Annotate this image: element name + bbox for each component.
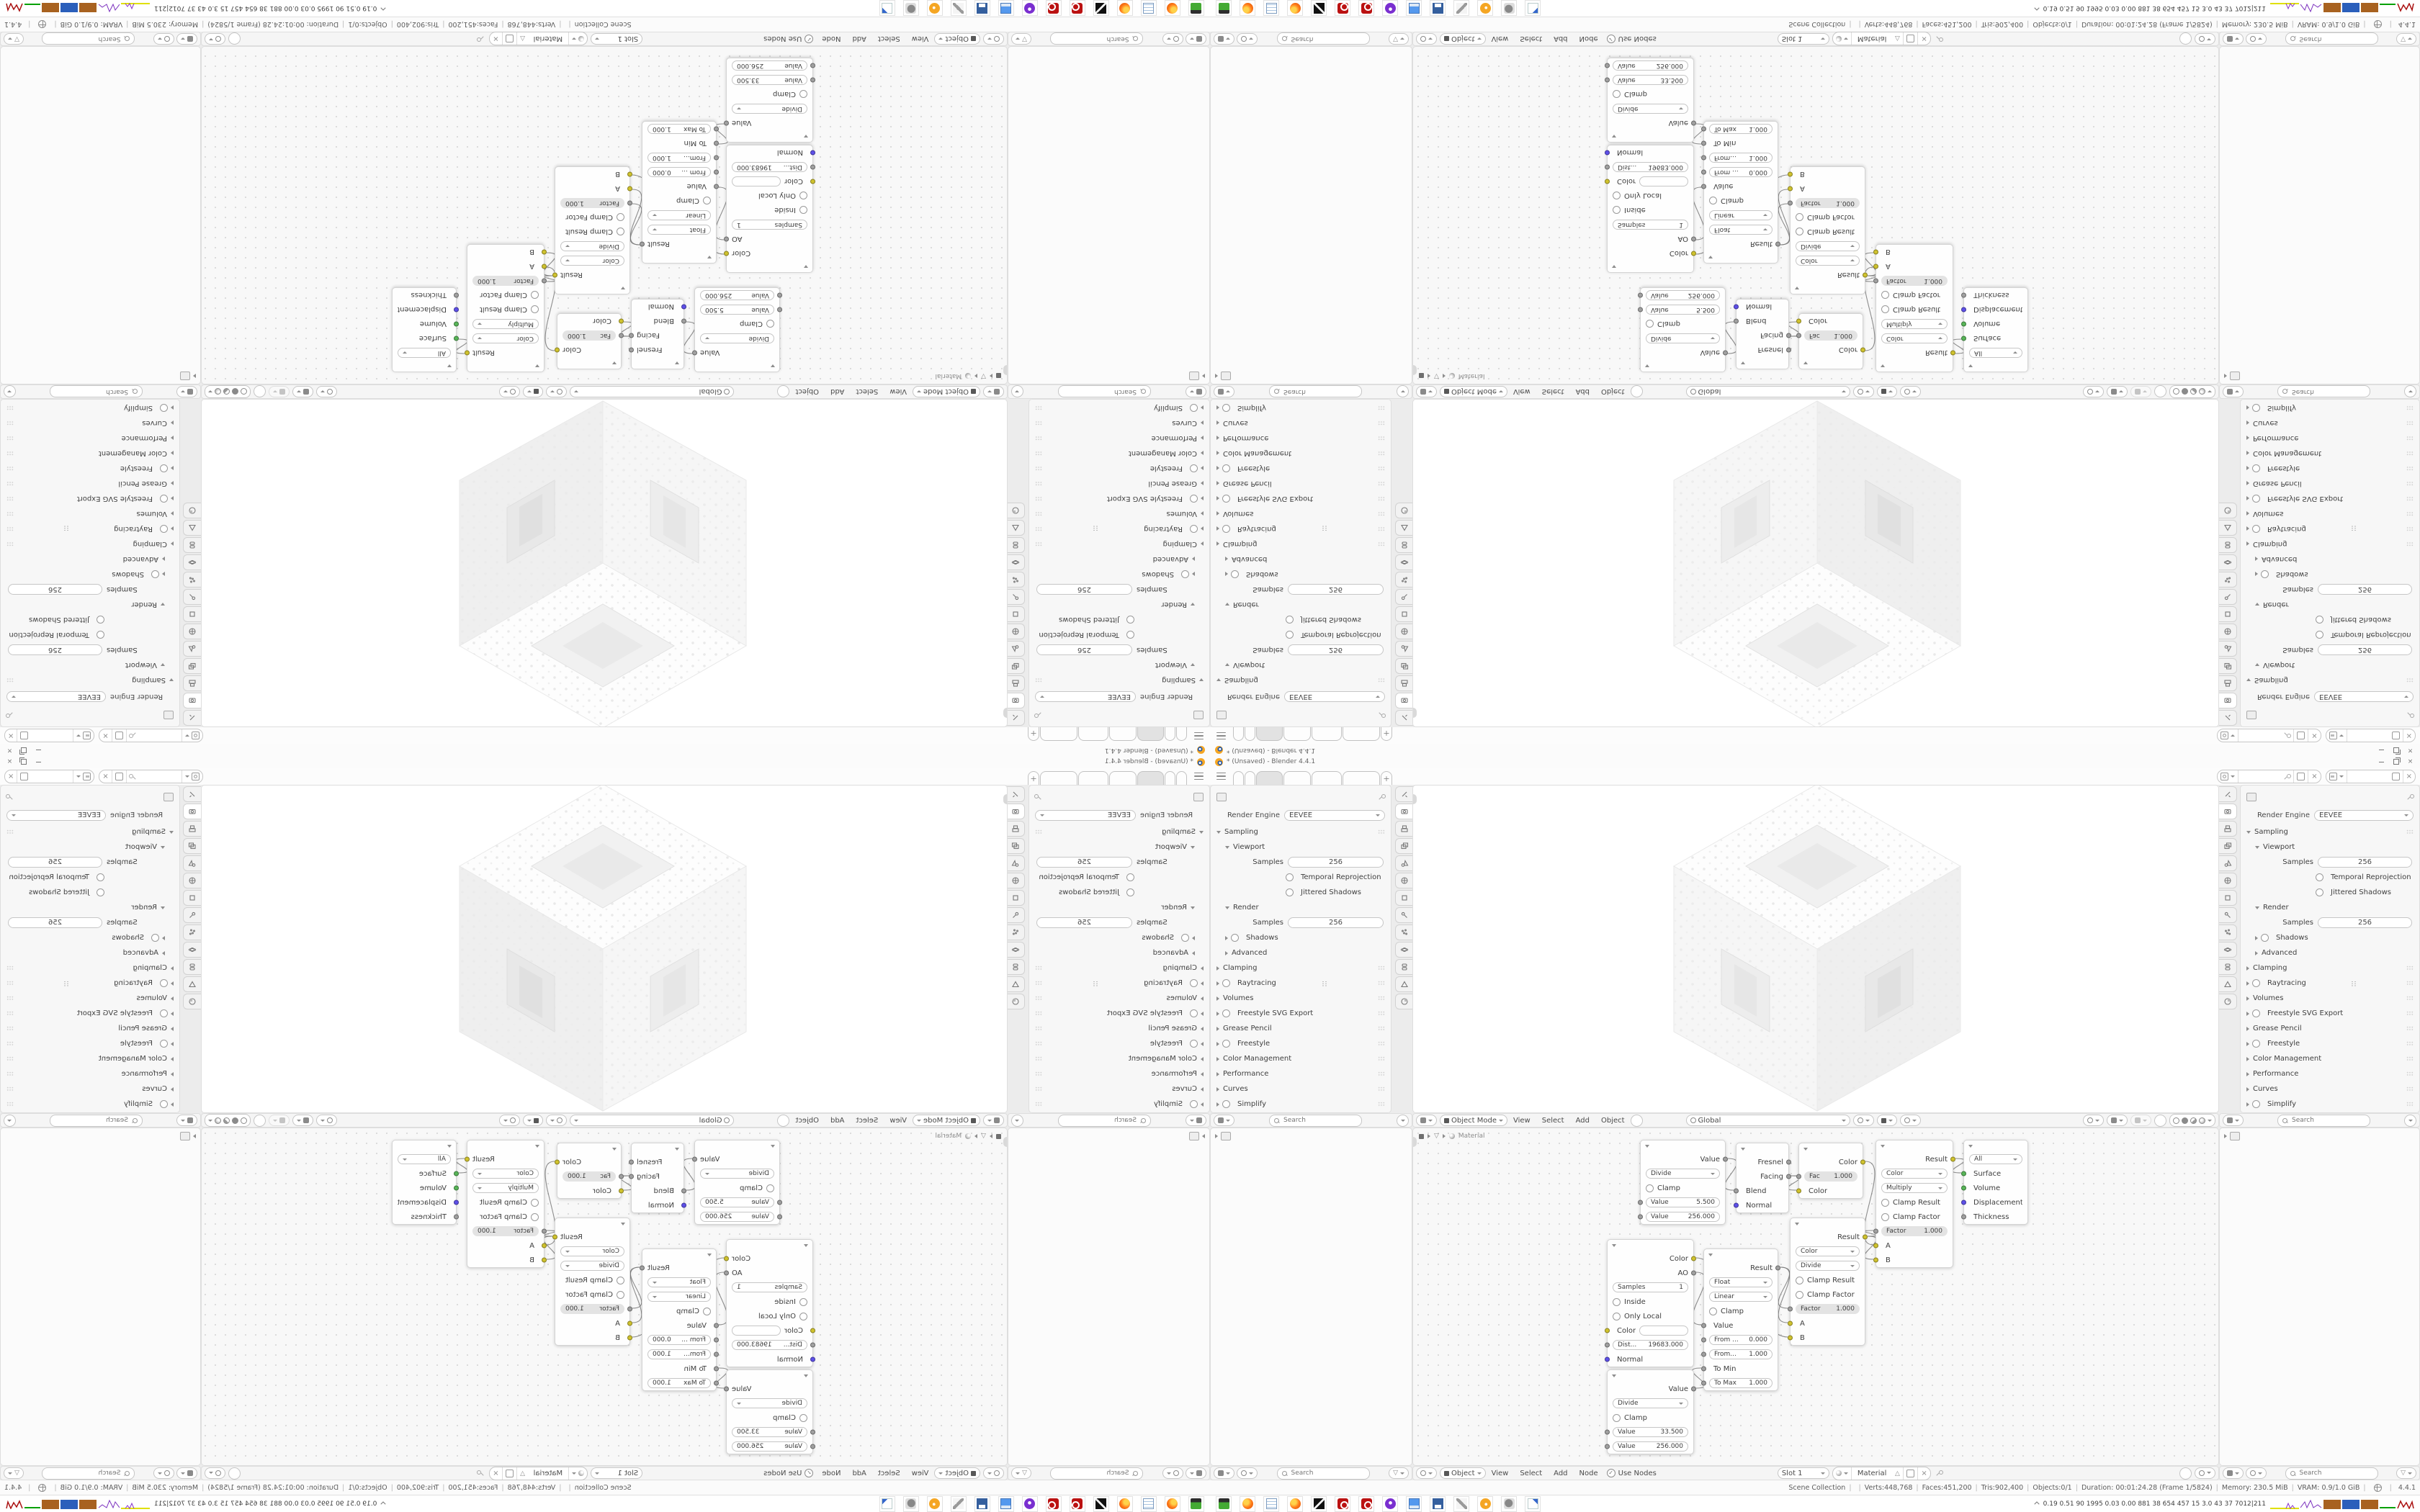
socket-r[interactable]	[1950, 1157, 1955, 1162]
search-input[interactable]	[2298, 1469, 2373, 1477]
properties-tab-output-icon[interactable]	[1395, 821, 1413, 837]
editor-type-button[interactable]	[1186, 1115, 1206, 1126]
socket-l[interactable]	[810, 1444, 815, 1449]
socket-l[interactable]	[1796, 1174, 1801, 1179]
checkbox-circle[interactable]	[1796, 214, 1803, 222]
collapse-chevron-icon[interactable]	[675, 361, 679, 364]
drag-grip-icon[interactable]	[1035, 1056, 1042, 1061]
checkbox-circle[interactable]	[2316, 873, 2323, 881]
drag-grip-icon[interactable]	[6, 678, 14, 683]
node-header[interactable]	[555, 282, 629, 294]
material-shading-icon[interactable]	[2190, 1117, 2197, 1124]
socket-l[interactable]	[627, 201, 632, 206]
options-button[interactable]	[1011, 386, 1023, 398]
dropdown-color[interactable]: Color	[560, 1246, 624, 1256]
section-volumes[interactable]: Volumes	[1211, 991, 1391, 1006]
viewport-editor-type-button[interactable]	[983, 1115, 1004, 1126]
socket-r[interactable]	[1786, 1174, 1791, 1179]
pivot-point-dropdown[interactable]	[546, 386, 567, 397]
socket-r[interactable]	[465, 351, 470, 356]
section-curves[interactable]: Curves	[2241, 1081, 2419, 1097]
drag-grip-icon[interactable]	[1035, 981, 1042, 986]
taskbar-app-redgear-icon[interactable]	[1335, 1, 1350, 17]
socket-r[interactable]	[692, 1157, 697, 1162]
close-button[interactable]: ×	[6, 758, 14, 766]
section-performance[interactable]: Performance	[2241, 1066, 2419, 1081]
section-temporal-reprojection[interactable]: Temporal Reprojection	[2241, 627, 2419, 642]
socket-r[interactable]	[1863, 273, 1868, 278]
section-performance[interactable]: Performance	[1029, 1066, 1209, 1081]
options-button[interactable]	[4, 386, 16, 398]
properties-tab-modifiers-icon[interactable]	[2219, 589, 2237, 605]
section-checkbox[interactable]	[1222, 495, 1230, 503]
properties-search[interactable]	[1269, 386, 1362, 398]
socket-r[interactable]	[629, 1174, 634, 1179]
section-performance[interactable]: Performance	[1, 1066, 179, 1081]
value-field[interactable]: Value256.000	[1613, 60, 1688, 71]
node-header[interactable]	[1876, 360, 1953, 372]
properties-tab-tool-icon[interactable]	[183, 710, 201, 726]
socket-r[interactable]	[1691, 1387, 1696, 1392]
socket-l[interactable]	[1701, 1381, 1706, 1386]
socket-l[interactable]	[619, 319, 624, 324]
properties-tab-view-layer-icon[interactable]	[1395, 838, 1413, 854]
checkbox-circle[interactable]	[766, 320, 774, 328]
drag-grip-icon[interactable]	[2406, 451, 2414, 456]
mode-transfer-button[interactable]	[1631, 386, 1643, 398]
checkbox-circle[interactable]	[1709, 197, 1717, 205]
properties-tab-object-icon[interactable]	[1007, 606, 1025, 622]
socket-l[interactable]	[810, 179, 815, 184]
menu-select[interactable]: Select	[1520, 35, 1542, 43]
socket-l[interactable]	[810, 63, 815, 68]
taskbar-app-wrench-icon[interactable]	[951, 1, 967, 17]
drag-grip-icon[interactable]	[2406, 466, 2414, 471]
section-clamping[interactable]: Clamping	[2241, 960, 2419, 976]
workspace-tab-4[interactable]	[1283, 727, 1311, 741]
properties-tab-object-data-icon[interactable]	[1395, 520, 1413, 536]
socket-l[interactable]	[1961, 322, 1966, 327]
editor-type-button[interactable]	[1416, 1467, 1437, 1479]
checkbox-circle[interactable]	[97, 631, 104, 639]
collapse-chevron-icon[interactable]	[1645, 364, 1649, 367]
dropdown-float[interactable]: Float	[647, 225, 711, 235]
drag-grip-icon[interactable]	[1378, 829, 1385, 834]
section-grease-pencil[interactable]: Grease Pencil	[1, 476, 179, 491]
fake-user-shield-button[interactable]: ▽	[1892, 33, 1904, 45]
section-viewport[interactable]: Viewport	[2241, 657, 2419, 672]
properties-search[interactable]	[1269, 1115, 1362, 1127]
taskbar-app-floppy-icon[interactable]	[974, 1496, 990, 1512]
taskbar-app-redgear-icon[interactable]	[1070, 1, 1085, 17]
taskbar-app-notepad-icon[interactable]	[1263, 1496, 1279, 1512]
samples-field[interactable]: 256	[8, 917, 102, 928]
new-scene-button[interactable]	[2294, 770, 2308, 783]
socket-l[interactable]	[1605, 1444, 1610, 1449]
drag-grip-icon[interactable]	[6, 420, 14, 426]
overlay-dropdown[interactable]	[2195, 1467, 2215, 1479]
section-grease-pencil[interactable]: Grease Pencil	[2241, 476, 2419, 491]
filter-button[interactable]: ▽	[1389, 33, 1409, 45]
display-mode-dropdown[interactable]	[1162, 33, 1183, 45]
section-shadows[interactable]: Shadows	[2241, 567, 2419, 582]
section-samples[interactable]: Samples256	[1211, 642, 1391, 657]
render-engine-dropdown[interactable]: EEVEE	[1284, 810, 1385, 821]
socket-l[interactable]	[810, 1357, 815, 1362]
node-header[interactable]	[727, 1370, 812, 1382]
value-field[interactable]: Fac1.000	[1804, 1171, 1857, 1182]
search-input[interactable]	[1282, 1116, 1357, 1125]
section-shadows[interactable]: Shadows	[1029, 930, 1209, 945]
properties-tab-particles-icon[interactable]	[183, 572, 201, 588]
collapse-chevron-icon[interactable]	[1741, 361, 1745, 364]
snapping-button[interactable]	[228, 1467, 241, 1480]
section-advanced[interactable]: Advanced	[1029, 945, 1209, 960]
workspace-tab-1[interactable]	[1176, 727, 1187, 741]
socket-l[interactable]	[1734, 305, 1739, 310]
options-button[interactable]	[4, 1115, 16, 1127]
checkbox-circle[interactable]	[1881, 1213, 1889, 1221]
dropdown-divide[interactable]: Divide	[1613, 1398, 1688, 1408]
drag-grip-icon[interactable]	[2406, 678, 2414, 683]
render-engine-dropdown[interactable]: EEVEE	[6, 692, 106, 703]
taskbar-app-redgear-icon[interactable]	[1358, 1, 1374, 17]
section-freestyle-svg-export[interactable]: Freestyle SVG Export	[1029, 491, 1209, 506]
node-header[interactable]	[1799, 357, 1863, 369]
drag-grip-icon[interactable]	[1035, 541, 1042, 546]
menu-add[interactable]: Add	[830, 388, 844, 396]
socket-l[interactable]	[1873, 250, 1878, 255]
new-scene-button[interactable]	[112, 770, 126, 783]
overlays-dropdown[interactable]	[292, 386, 313, 397]
section-freestyle-svg-export[interactable]: Freestyle SVG Export	[1211, 1006, 1391, 1021]
unlink-material-button[interactable]: ×	[490, 33, 501, 45]
section-samples[interactable]: Samples256	[1029, 855, 1209, 870]
section-viewport[interactable]: Viewport	[2241, 840, 2419, 855]
node-mix-rgb[interactable]: ColorFac1.000Color	[1798, 313, 1863, 369]
copy-material-button[interactable]	[1904, 33, 1918, 45]
workspace-tab-5[interactable]	[1078, 771, 1108, 785]
properties-tab-material-icon[interactable]	[183, 994, 201, 1009]
socket-l[interactable]	[1961, 1215, 1966, 1220]
overlays-dropdown[interactable]	[2107, 386, 2128, 397]
socket-l[interactable]	[454, 1186, 459, 1191]
properties-tab-object-icon[interactable]	[2219, 890, 2237, 906]
drag-grip-icon[interactable]	[1378, 420, 1385, 426]
editor-type-button[interactable]	[1416, 33, 1437, 45]
properties-tab-world-icon[interactable]	[2219, 624, 2237, 639]
outliner-collapsed-row[interactable]	[1, 1128, 200, 1140]
section-curves[interactable]: Curves	[1029, 415, 1209, 431]
section-clamping[interactable]: Clamping	[1211, 960, 1391, 976]
collapse-chevron-icon[interactable]	[804, 1244, 808, 1247]
properties-tab-modifiers-icon[interactable]	[1395, 589, 1413, 605]
taskbar-app-recorder-icon[interactable]	[1188, 1496, 1204, 1512]
taskbar-app-gimp-icon[interactable]	[1501, 1496, 1517, 1512]
properties-tab-world-icon[interactable]	[1007, 624, 1025, 639]
drag-grip-icon[interactable]	[2406, 996, 2414, 1001]
drag-grip-icon[interactable]	[2406, 829, 2414, 834]
pin-icon[interactable]	[478, 1470, 485, 1477]
mode-dropdown[interactable]: Object Mode	[1440, 386, 1507, 397]
taskbar-app-redgear-icon[interactable]	[1070, 1496, 1085, 1512]
collapse-chevron-icon[interactable]	[535, 364, 539, 367]
socket-l[interactable]	[542, 264, 547, 269]
section-curves[interactable]: Curves	[1029, 1081, 1209, 1097]
socket-r[interactable]	[1863, 1235, 1868, 1240]
section-freestyle[interactable]: Freestyle	[1, 461, 179, 476]
section-advanced[interactable]: Advanced	[1, 945, 179, 960]
dropdown-linear[interactable]: Linear	[647, 210, 711, 220]
collapse-chevron-icon[interactable]	[535, 1145, 539, 1148]
outliner-search[interactable]	[2285, 33, 2378, 45]
properties-tab-constraints-icon[interactable]	[1007, 537, 1025, 553]
section-freestyle[interactable]: Freestyle	[2241, 1036, 2419, 1051]
socket-l[interactable]	[1605, 1357, 1610, 1362]
samples-field[interactable]: 256	[8, 644, 102, 655]
section-simplify[interactable]: Simplify	[1211, 1097, 1391, 1112]
properties-tab-output-icon[interactable]	[2219, 821, 2237, 837]
node-header[interactable]	[632, 1143, 684, 1155]
node-header[interactable]	[1608, 261, 1693, 272]
properties-tab-tool-icon[interactable]	[1395, 710, 1413, 726]
viewport-editor-type-button[interactable]	[1416, 1115, 1437, 1126]
transform-orientation-dropdown[interactable]: Global	[1686, 1115, 1850, 1126]
node-ao[interactable]: ColorAOSamples1InsideOnly LocalColorDist…	[726, 1239, 813, 1367]
outliner-collapsed-row[interactable]	[1, 372, 200, 384]
collapse-chevron-icon[interactable]	[804, 1374, 808, 1377]
drag-grip-icon[interactable]	[1035, 496, 1042, 501]
properties-tab-physics-icon[interactable]	[2219, 554, 2237, 570]
pin-icon[interactable]	[2283, 773, 2290, 780]
node-map-range[interactable]: ResultFloatLinearClampValueFrom ...0.000…	[642, 121, 717, 264]
outliner-collapsed-row[interactable]	[2220, 1128, 2419, 1140]
drag-grip-icon[interactable]	[6, 1011, 14, 1016]
material-name[interactable]: Material	[528, 35, 569, 43]
collapse-chevron-icon[interactable]	[1708, 256, 1713, 258]
socket-r[interactable]	[724, 1271, 729, 1276]
section-freestyle-svg-export[interactable]: Freestyle SVG Export	[1211, 491, 1391, 506]
samples-field[interactable]: 256	[1288, 857, 1384, 868]
render-preview-button[interactable]	[254, 386, 266, 398]
checkbox-circle[interactable]	[531, 1213, 539, 1221]
snap-dropdown[interactable]	[1877, 386, 1897, 397]
search-input[interactable]	[1290, 35, 1365, 43]
drag-grip-icon[interactable]	[2406, 1056, 2414, 1061]
checkbox-circle[interactable]	[1286, 888, 1294, 896]
close-button[interactable]: ×	[2406, 747, 2414, 755]
socket-l[interactable]	[777, 307, 782, 312]
socket-l[interactable]	[714, 170, 719, 175]
drag-grip-icon[interactable]	[2406, 481, 2414, 486]
restore-button[interactable]	[20, 747, 28, 755]
checkbox-circle[interactable]	[97, 888, 104, 896]
socket-l[interactable]	[1734, 319, 1739, 324]
properties-tab-render-icon[interactable]	[1007, 693, 1025, 708]
drag-grip-icon[interactable]	[1035, 481, 1042, 486]
samples-field[interactable]: 256	[1036, 917, 1132, 928]
collapse-chevron-icon[interactable]	[1803, 361, 1808, 364]
properties-search[interactable]	[50, 1115, 143, 1127]
node-header[interactable]	[467, 360, 544, 372]
section-checkbox[interactable]	[2261, 934, 2269, 942]
socket-l[interactable]	[1788, 172, 1793, 177]
properties-tab-material-icon[interactable]	[2219, 994, 2237, 1009]
options-button[interactable]	[1397, 1115, 1409, 1127]
node-math-1[interactable]: ValueDivideClampValue5.500Value256.000	[1640, 287, 1726, 372]
dropdown-multiply[interactable]: Multiply	[472, 1183, 539, 1193]
value-field[interactable]: Value256.000	[700, 1212, 774, 1222]
section-viewport[interactable]: Viewport	[1029, 840, 1209, 855]
collapse-chevron-icon[interactable]	[621, 287, 625, 289]
drag-grip-icon[interactable]	[1035, 1071, 1042, 1076]
menu-add[interactable]: Add	[1576, 1117, 1590, 1125]
value-field[interactable]: To Max1.000	[647, 1378, 711, 1388]
checkbox-circle[interactable]	[799, 1298, 807, 1306]
shading-mode-group[interactable]	[2169, 1114, 2215, 1127]
solid-shading-icon[interactable]	[232, 389, 238, 395]
section-clamping[interactable]: Clamping	[2241, 536, 2419, 552]
collapse-chevron-icon[interactable]	[707, 256, 712, 258]
pin-icon[interactable]	[478, 35, 485, 42]
node-header[interactable]	[695, 1140, 779, 1152]
menu-add[interactable]: Add	[1554, 35, 1567, 43]
section-sampling[interactable]: Sampling	[1029, 672, 1209, 688]
section-checkbox[interactable]	[2252, 495, 2260, 503]
properties-tab-output-icon[interactable]	[183, 821, 201, 837]
section-freestyle[interactable]: Freestyle	[2241, 461, 2419, 476]
checkbox-circle[interactable]	[97, 616, 104, 624]
value-field[interactable]: Factor1.000	[1881, 276, 1948, 286]
properties-tab-view-layer-icon[interactable]	[1395, 658, 1413, 674]
section-freestyle[interactable]: Freestyle	[1, 1036, 179, 1051]
value-field[interactable]: Samples1	[732, 1282, 807, 1292]
node-header[interactable]	[632, 357, 684, 369]
node-header[interactable]	[642, 251, 716, 263]
socket-l[interactable]	[1873, 1229, 1878, 1234]
socket-r[interactable]	[555, 1160, 560, 1165]
socket-l[interactable]	[1605, 150, 1610, 156]
taskbar-app-redgear-icon[interactable]	[1335, 1496, 1350, 1512]
properties-tab-render-icon[interactable]	[2219, 804, 2237, 819]
socket-l[interactable]	[810, 1430, 815, 1435]
dropdown-divide[interactable]: Divide	[700, 333, 774, 343]
scene-name-field[interactable]	[2238, 729, 2280, 742]
remove-view-layer-button[interactable]: ×	[2403, 729, 2415, 742]
section-shadows[interactable]: Shadows	[2241, 930, 2419, 945]
dropdown-color[interactable]: Color	[1796, 256, 1860, 266]
mode-dropdown[interactable]: Object Mode	[913, 386, 980, 397]
add-workspace-button[interactable]: +	[1381, 771, 1392, 785]
socket-l[interactable]	[1734, 1203, 1739, 1208]
drag-grip-icon[interactable]	[2406, 511, 2414, 516]
editor-type-button[interactable]	[2223, 1115, 2244, 1126]
use-nodes-toggle[interactable]: ✓ Use Nodes	[1607, 1469, 1657, 1477]
outliner-collapsed-row[interactable]	[1008, 1128, 1209, 1140]
section-advanced[interactable]: Advanced	[1029, 552, 1209, 567]
node-map-range[interactable]: ResultFloatLinearClampValueFrom ...0.000…	[642, 1248, 717, 1391]
socket-l[interactable]	[627, 172, 632, 177]
properties-tab-object-icon[interactable]	[183, 606, 201, 622]
properties-tab-modifiers-icon[interactable]	[183, 589, 201, 605]
socket-r[interactable]	[629, 1160, 634, 1165]
section-samples[interactable]: Samples256	[2241, 855, 2419, 870]
socket-l[interactable]	[627, 1321, 632, 1326]
node-header[interactable]	[557, 1143, 621, 1155]
value-field[interactable]: Factor1.000	[472, 276, 539, 286]
dropdown-multiply[interactable]: Multiply	[472, 319, 539, 329]
checkbox-circle[interactable]	[1286, 873, 1294, 881]
collapse-chevron-icon[interactable]	[1881, 364, 1885, 367]
section-viewport[interactable]: Viewport	[1211, 840, 1391, 855]
dropdown-color[interactable]: Color	[472, 333, 539, 343]
remove-view-layer-button[interactable]: ×	[5, 729, 17, 742]
section-temporal-reprojection[interactable]: Temporal Reprojection	[1029, 627, 1209, 642]
pin-icon[interactable]	[1035, 793, 1042, 801]
drag-grip-icon[interactable]	[1378, 481, 1385, 486]
socket-l[interactable]	[1961, 1171, 1966, 1176]
menu-hamburger-icon[interactable]	[1194, 732, 1204, 739]
collapse-chevron-icon[interactable]	[1968, 1145, 1973, 1148]
section-checkbox[interactable]	[160, 1100, 168, 1108]
socket-l[interactable]	[714, 1352, 719, 1357]
dropdown-linear[interactable]: Linear	[1709, 210, 1773, 220]
copy-material-button[interactable]	[1904, 1467, 1918, 1480]
taskbar-app-ghost-icon[interactable]	[1382, 1496, 1398, 1512]
xray-toggle[interactable]	[2130, 1115, 2151, 1126]
properties-tab-scene-icon[interactable]	[183, 641, 201, 657]
section-checkbox[interactable]	[1231, 570, 1239, 578]
menu-node[interactable]: Node	[822, 35, 841, 43]
socket-l[interactable]	[810, 1328, 815, 1333]
value-field[interactable]: Factor1.000	[1796, 198, 1860, 208]
section-temporal-reprojection[interactable]: Temporal Reprojection	[1, 870, 179, 885]
view-layer-selector[interactable]: ×	[4, 729, 94, 742]
restore-button[interactable]	[20, 758, 28, 766]
drag-grip-icon[interactable]	[1035, 1011, 1042, 1016]
node-math-1[interactable]: ValueDivideClampValue5.500Value256.000	[694, 287, 780, 372]
node-mix-divide[interactable]: ResultColorDivideClamp ResultClamp Facto…	[1790, 166, 1865, 294]
workspace-tab-4[interactable]	[1109, 771, 1137, 785]
socket-l[interactable]	[454, 336, 459, 341]
menu-node[interactable]: Node	[1579, 35, 1598, 43]
color-field[interactable]	[732, 1326, 781, 1336]
pin-icon[interactable]	[130, 732, 137, 739]
editor-type-button[interactable]	[2223, 386, 2244, 397]
socket-r[interactable]	[640, 242, 645, 247]
drag-grip-icon[interactable]	[6, 405, 14, 410]
taskbar-app-redgear-icon[interactable]	[1046, 1, 1062, 17]
value-field[interactable]: From...1.000	[647, 153, 711, 163]
material-slot-dropdown[interactable]: Slot 1	[1778, 1467, 1829, 1479]
transform-orientation-dropdown[interactable]: Global	[1686, 386, 1850, 397]
display-mode-dropdown[interactable]	[153, 33, 174, 45]
color-field[interactable]	[732, 176, 781, 186]
socket-l[interactable]	[1734, 1189, 1739, 1194]
value-field[interactable]: Factor1.000	[560, 198, 624, 208]
socket-r[interactable]	[724, 1256, 729, 1261]
value-field[interactable]: Samples1	[1613, 1282, 1688, 1292]
material-datablock[interactable]: Material ▽ ×	[1832, 1467, 1931, 1480]
section-sampling[interactable]: Sampling	[2241, 672, 2419, 688]
mode-transfer-button[interactable]	[1631, 1115, 1643, 1127]
section-render[interactable]: Render	[1211, 900, 1391, 915]
drag-grip-icon[interactable]	[1378, 966, 1385, 971]
taskbar-app-recorder-icon[interactable]	[1216, 1496, 1232, 1512]
menu-view[interactable]: View	[889, 388, 907, 396]
socket-l[interactable]	[714, 1367, 719, 1372]
properties-tab-tool-icon[interactable]	[183, 786, 201, 802]
